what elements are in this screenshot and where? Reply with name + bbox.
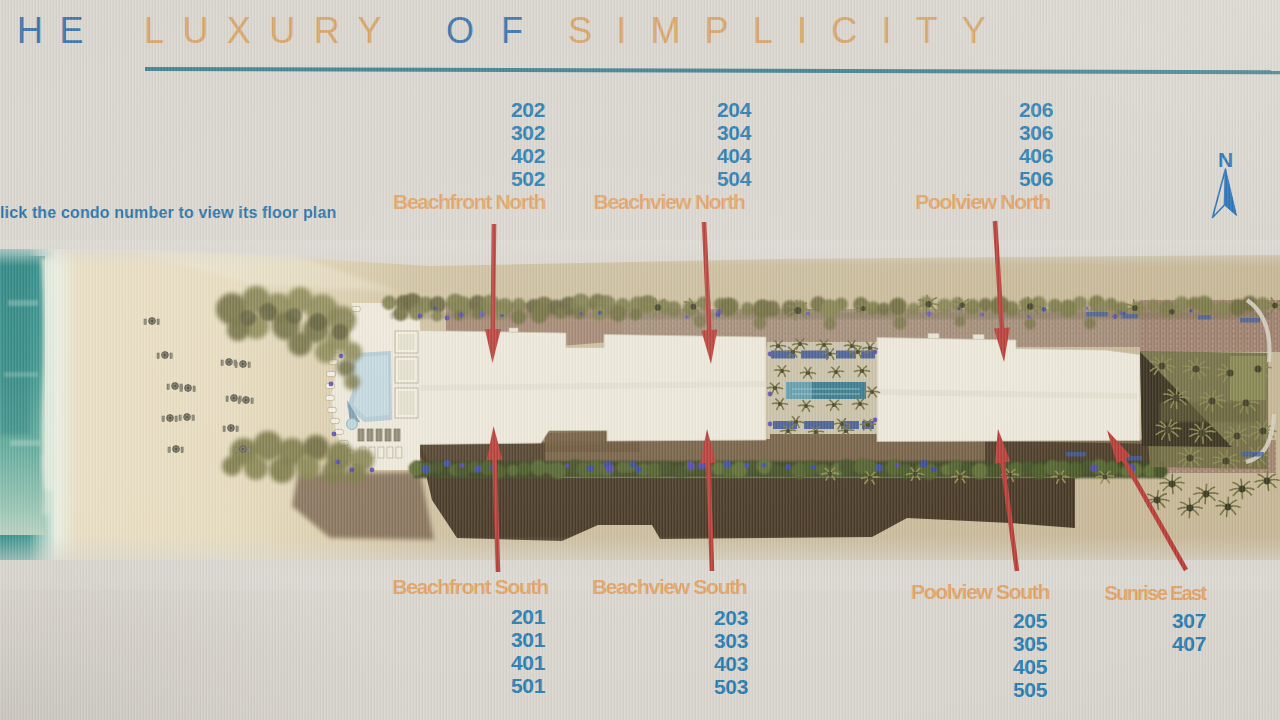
svg-text:N: N [1218,148,1233,171]
